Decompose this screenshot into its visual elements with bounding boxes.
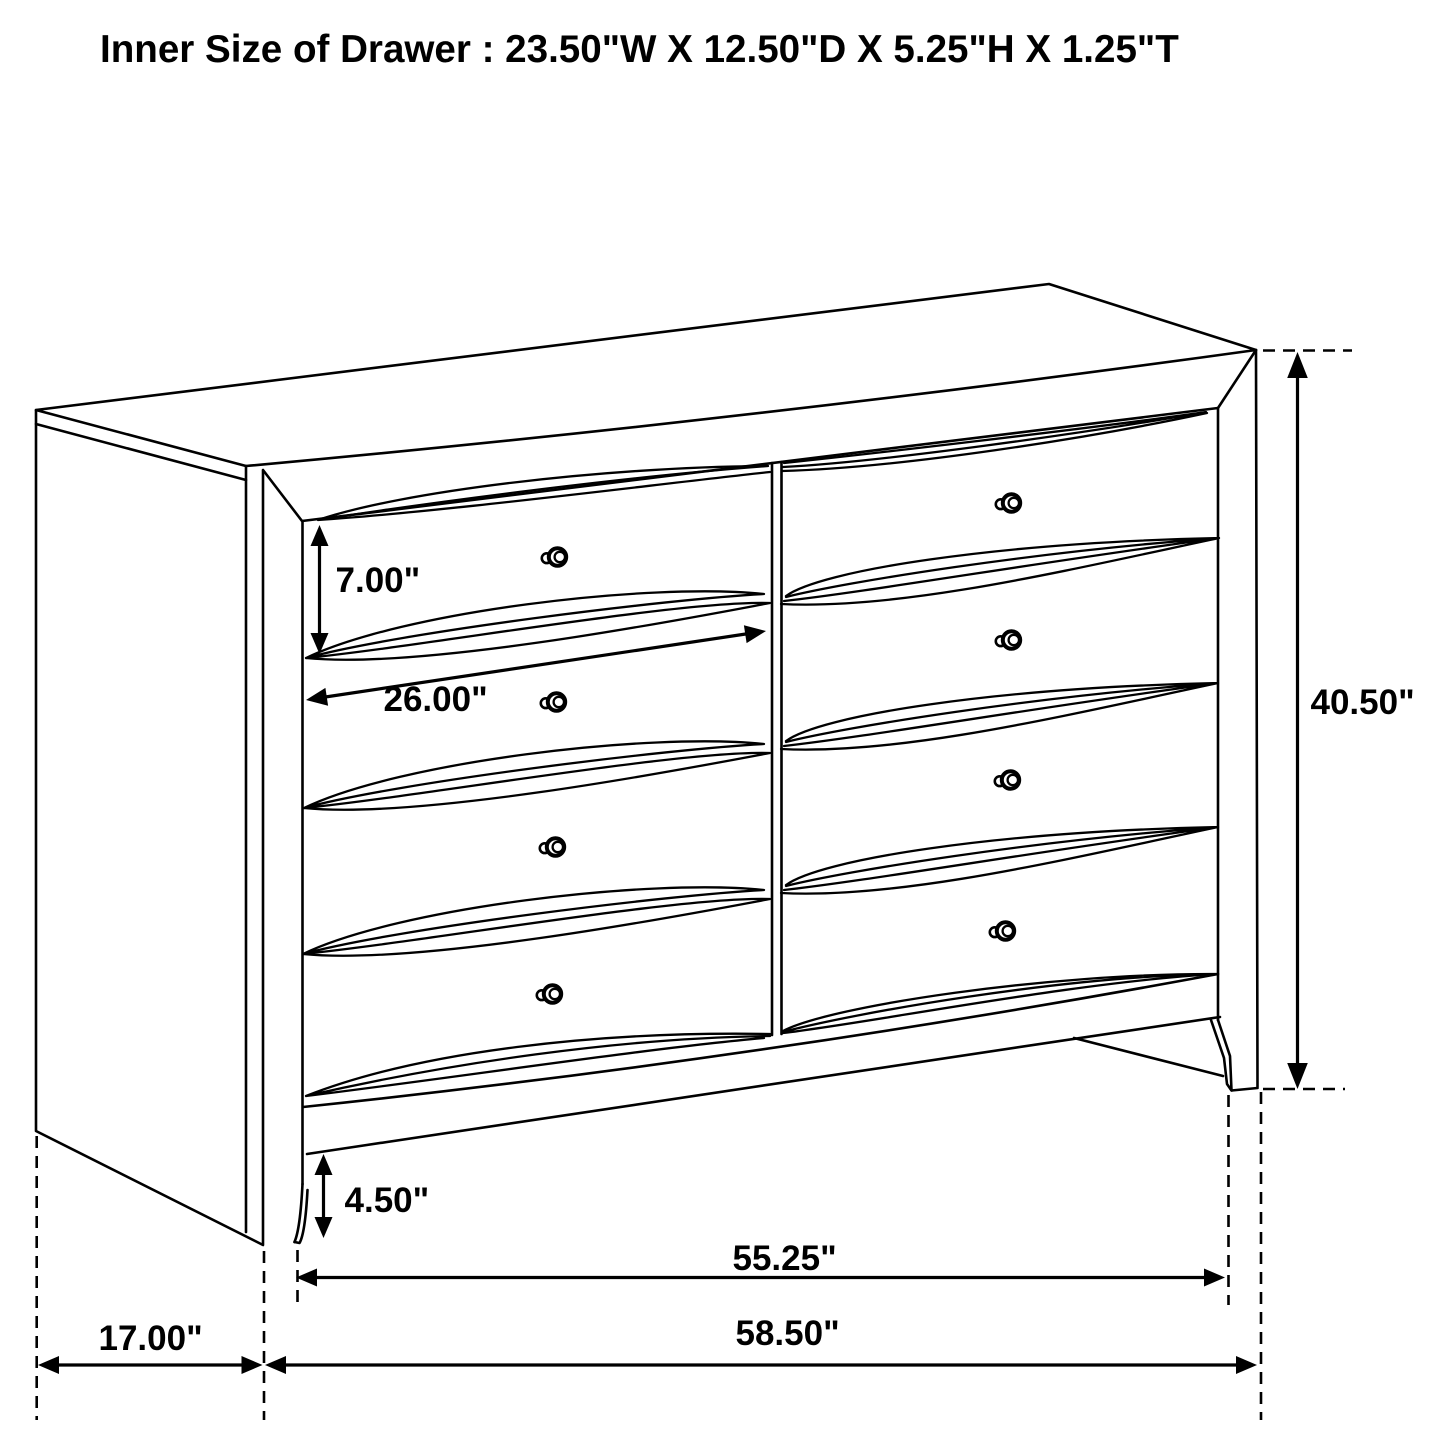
svg-text:40.50": 40.50": [1311, 683, 1415, 722]
svg-text:58.50": 58.50": [736, 1314, 840, 1353]
svg-text:55.25": 55.25": [733, 1239, 837, 1278]
svg-text:Inner Size of Drawer : 23.50"W: Inner Size of Drawer : 23.50"W X 12.50"D…: [100, 28, 1179, 71]
svg-text:4.50": 4.50": [345, 1181, 430, 1220]
svg-text:17.00": 17.00": [99, 1319, 203, 1358]
svg-text:26.00": 26.00": [384, 680, 488, 719]
svg-text:7.00": 7.00": [336, 561, 421, 600]
